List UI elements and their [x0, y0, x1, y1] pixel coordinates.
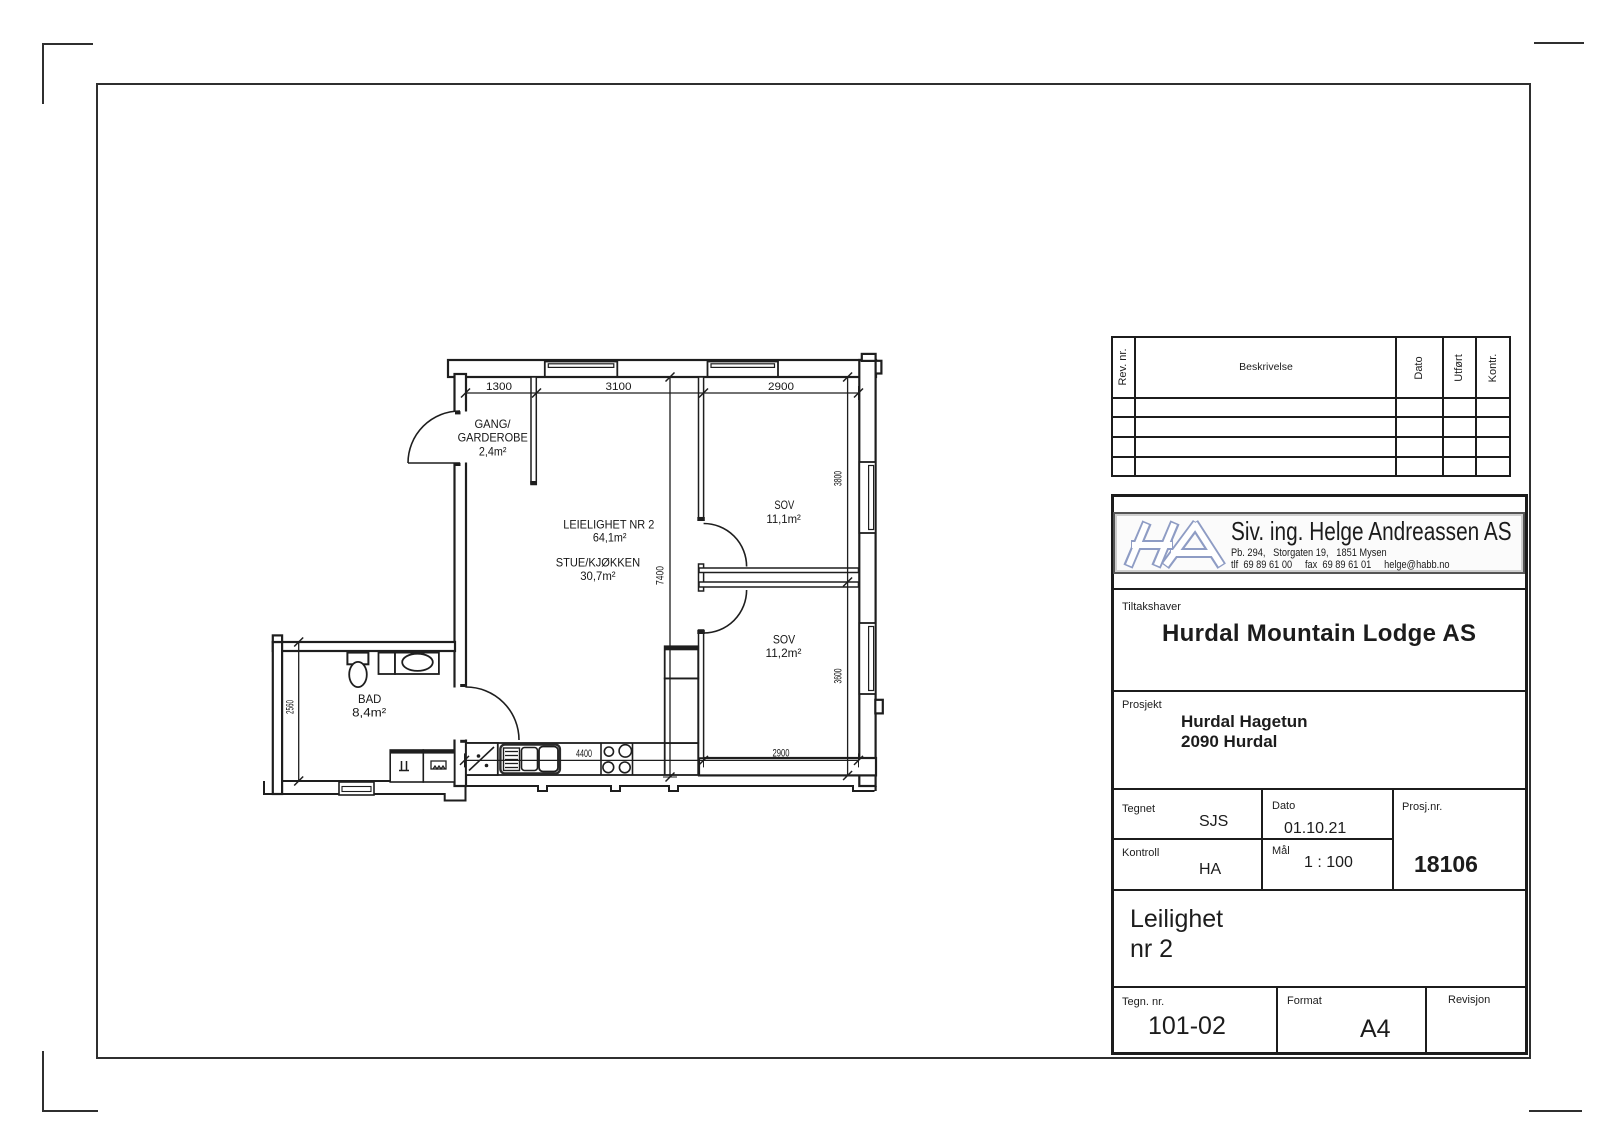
svg-text:1300: 1300: [486, 381, 512, 393]
svg-text:STUE/KJØKKEN: STUE/KJØKKEN: [556, 556, 640, 570]
svg-text:3600: 3600: [833, 669, 845, 684]
svg-text:8,4m²: 8,4m²: [352, 706, 386, 720]
svg-text:SOV: SOV: [773, 633, 795, 647]
svg-text:2900: 2900: [768, 381, 794, 393]
svg-text:3100: 3100: [606, 381, 632, 393]
svg-text:2560: 2560: [285, 700, 297, 714]
svg-text:GARDEROBE: GARDEROBE: [458, 431, 528, 445]
svg-text:4400: 4400: [576, 748, 592, 760]
svg-text:BAD: BAD: [358, 692, 382, 706]
svg-text:2900: 2900: [773, 748, 790, 760]
svg-text:3800: 3800: [833, 471, 845, 486]
svg-text:7400: 7400: [655, 566, 667, 585]
svg-text:30,7m²: 30,7m²: [580, 569, 615, 583]
svg-text:2,4m²: 2,4m²: [479, 444, 507, 458]
svg-text:11,1m²: 11,1m²: [766, 512, 801, 526]
svg-text:SOV: SOV: [774, 498, 794, 512]
svg-text:GANG/: GANG/: [474, 417, 511, 431]
svg-text:64,1m²: 64,1m²: [593, 530, 627, 544]
svg-text:11,2m²: 11,2m²: [766, 646, 802, 660]
